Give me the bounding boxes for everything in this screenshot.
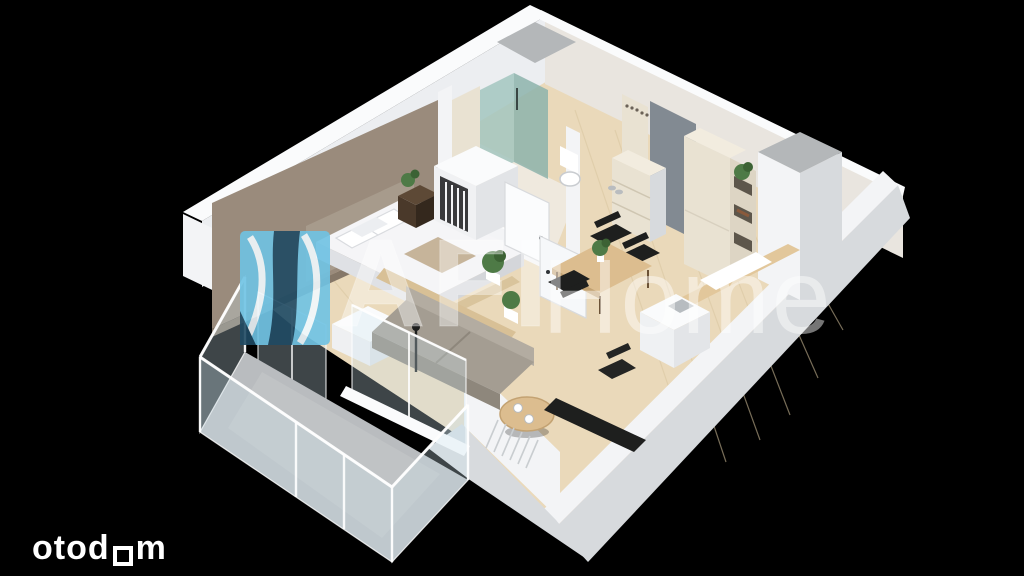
toilet-bowl (560, 172, 580, 186)
shoe-right (615, 190, 623, 195)
otodom-text-suffix: m (136, 529, 167, 568)
otodom-square-glyph (113, 546, 133, 566)
afi-logo-watermark-icon (240, 231, 330, 345)
drawer-chest-side (650, 168, 666, 242)
otodom-text-prefix: otod (32, 529, 110, 568)
nightstand-plant-leaf (411, 170, 420, 179)
watermark-text-light: Home (542, 244, 833, 350)
coffee-table (500, 397, 554, 431)
floorplan-screenshot: AFI Home otod m (0, 0, 1024, 576)
shoe-left (608, 186, 616, 191)
shower-glass-right (514, 73, 548, 179)
coffee-cup-2 (525, 415, 534, 424)
coffee-cup-1 (514, 404, 523, 413)
otodom-logo: otod m (32, 529, 167, 568)
watermark-text-bold: AFI (336, 222, 554, 346)
shelf-plant-leaf (743, 162, 753, 172)
